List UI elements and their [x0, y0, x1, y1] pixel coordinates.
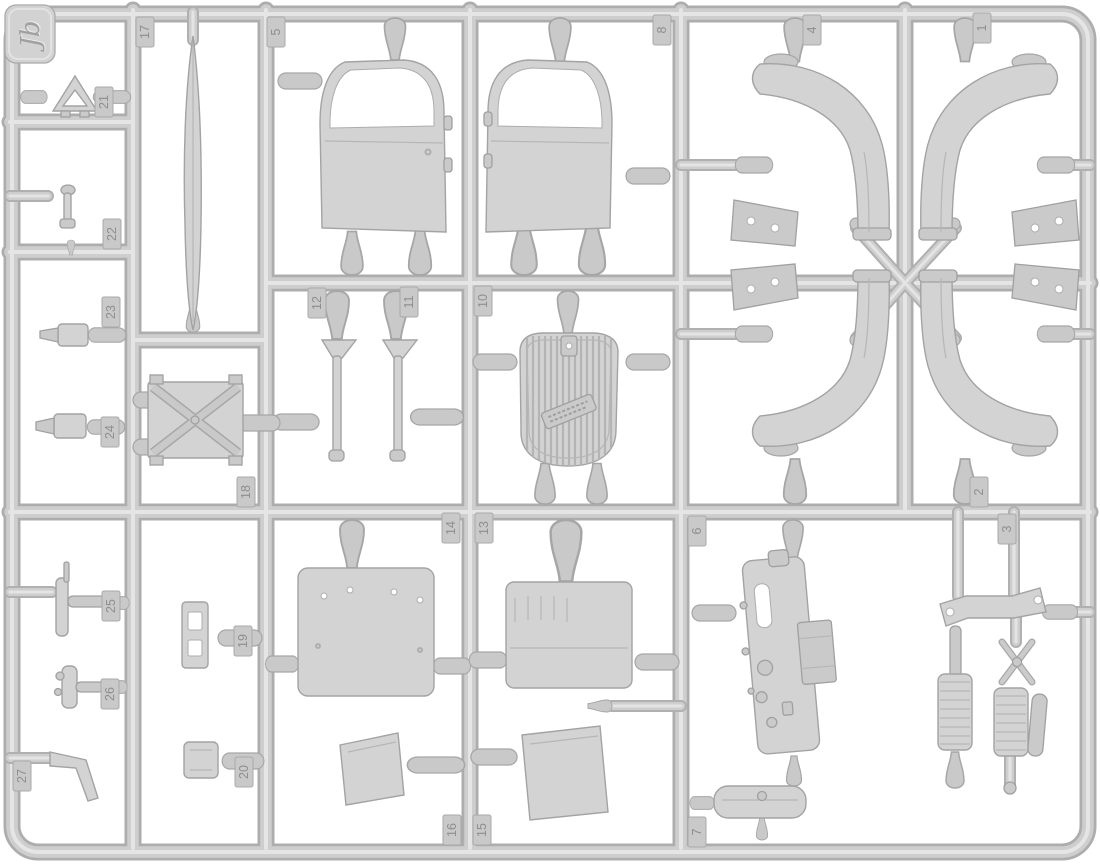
part-lever-25 [56, 562, 106, 636]
svg-text:16: 16 [445, 823, 459, 837]
logo-text: Jb [16, 20, 46, 52]
sprue-svg: Jb Jb 17 5 8 4 1 21 22 23 [0, 0, 1100, 866]
part-number-tab-23: 23 [102, 297, 120, 327]
part-number-tab-17: 17 [136, 17, 154, 47]
part-pedal-12 [322, 340, 356, 461]
part-radiator-grille [520, 333, 618, 466]
part-number-tab-18: 18 [237, 477, 255, 507]
svg-text:8: 8 [655, 26, 669, 33]
part-number-tab-7: 7 [688, 817, 706, 847]
part-firewall-assembly [734, 546, 843, 755]
svg-text:27: 27 [15, 769, 29, 783]
part-lever-27 [50, 752, 98, 801]
sprue-photo: Jb Jb 17 5 8 4 1 21 22 23 [0, 0, 1100, 866]
part-number-tab-27: 27 [13, 761, 31, 791]
part-horn [60, 185, 75, 228]
part-number-tab-13: 13 [475, 513, 493, 543]
svg-text:2: 2 [972, 488, 986, 495]
svg-text:24: 24 [103, 425, 117, 439]
svg-text:25: 25 [104, 599, 118, 613]
part-fitting-23 [40, 324, 88, 346]
part-warning-triangle [53, 76, 97, 117]
part-number-tab-20: 20 [235, 757, 253, 787]
part-bracket-19 [182, 602, 208, 668]
part-x-link [1002, 642, 1032, 682]
part-number-tab-2: 2 [970, 477, 988, 507]
part-number-tab-8: 8 [653, 15, 671, 45]
part-number-tab-1: 1 [973, 13, 991, 43]
part-x-frame [148, 375, 243, 465]
part-number-tab-3: 3 [998, 514, 1016, 544]
svg-text:22: 22 [105, 227, 119, 241]
svg-text:19: 19 [236, 634, 250, 648]
part-fitting-24 [36, 414, 86, 438]
part-number-tab-22: 22 [103, 219, 121, 249]
part-number-tab-24: 24 [101, 417, 119, 447]
part-number-tab-21: 21 [95, 87, 113, 117]
part-trim-strip [184, 36, 201, 330]
svg-text:18: 18 [239, 485, 253, 499]
svg-text:3: 3 [1000, 525, 1014, 532]
part-number-tab-25: 25 [102, 591, 120, 621]
part-lever-26 [55, 666, 105, 708]
part-number-tab-15: 15 [473, 815, 491, 845]
part-number-tab-6: 6 [688, 516, 706, 546]
svg-text:4: 4 [805, 26, 819, 33]
part-number-tab-4: 4 [803, 15, 821, 45]
svg-text:20: 20 [237, 765, 251, 779]
part-cab-floor-panel [506, 582, 632, 688]
svg-text:1: 1 [975, 24, 989, 31]
part-number-tab-10: 10 [474, 286, 492, 316]
svg-text:12: 12 [310, 296, 324, 310]
part-leaf-spring-left [938, 674, 972, 750]
part-number-tab-26: 26 [101, 679, 119, 709]
svg-text:26: 26 [103, 687, 117, 701]
part-number-tab-12: 12 [308, 288, 326, 318]
logo-tab: Jb Jb [5, 5, 55, 63]
svg-text:7: 7 [690, 828, 704, 835]
part-cab-rear-panel [298, 568, 434, 696]
svg-text:5: 5 [269, 28, 283, 35]
svg-text:21: 21 [97, 95, 111, 109]
part-flat-panel-7 [714, 786, 806, 818]
part-number-tab-19: 19 [234, 626, 252, 656]
part-block-20 [184, 742, 218, 778]
svg-text:17: 17 [138, 25, 152, 39]
part-door-right [484, 60, 612, 232]
svg-text:15: 15 [475, 823, 489, 837]
part-seat-panel-16 [340, 733, 404, 805]
svg-text:6: 6 [690, 527, 704, 534]
svg-text:13: 13 [477, 521, 491, 535]
part-number-tab-16: 16 [443, 815, 461, 845]
svg-text:14: 14 [444, 521, 458, 535]
part-leaf-spring-right [994, 688, 1028, 756]
part-door-left [320, 60, 452, 232]
part-number-tab-11: 11 [400, 287, 418, 317]
svg-text:23: 23 [104, 305, 118, 319]
part-number-tab-5: 5 [267, 17, 285, 47]
part-pedal-11 [383, 340, 417, 461]
svg-text:11: 11 [402, 295, 416, 308]
part-number-tab-14: 14 [442, 513, 460, 543]
svg-text:10: 10 [476, 294, 490, 308]
part-seat-panel-15 [522, 726, 608, 820]
